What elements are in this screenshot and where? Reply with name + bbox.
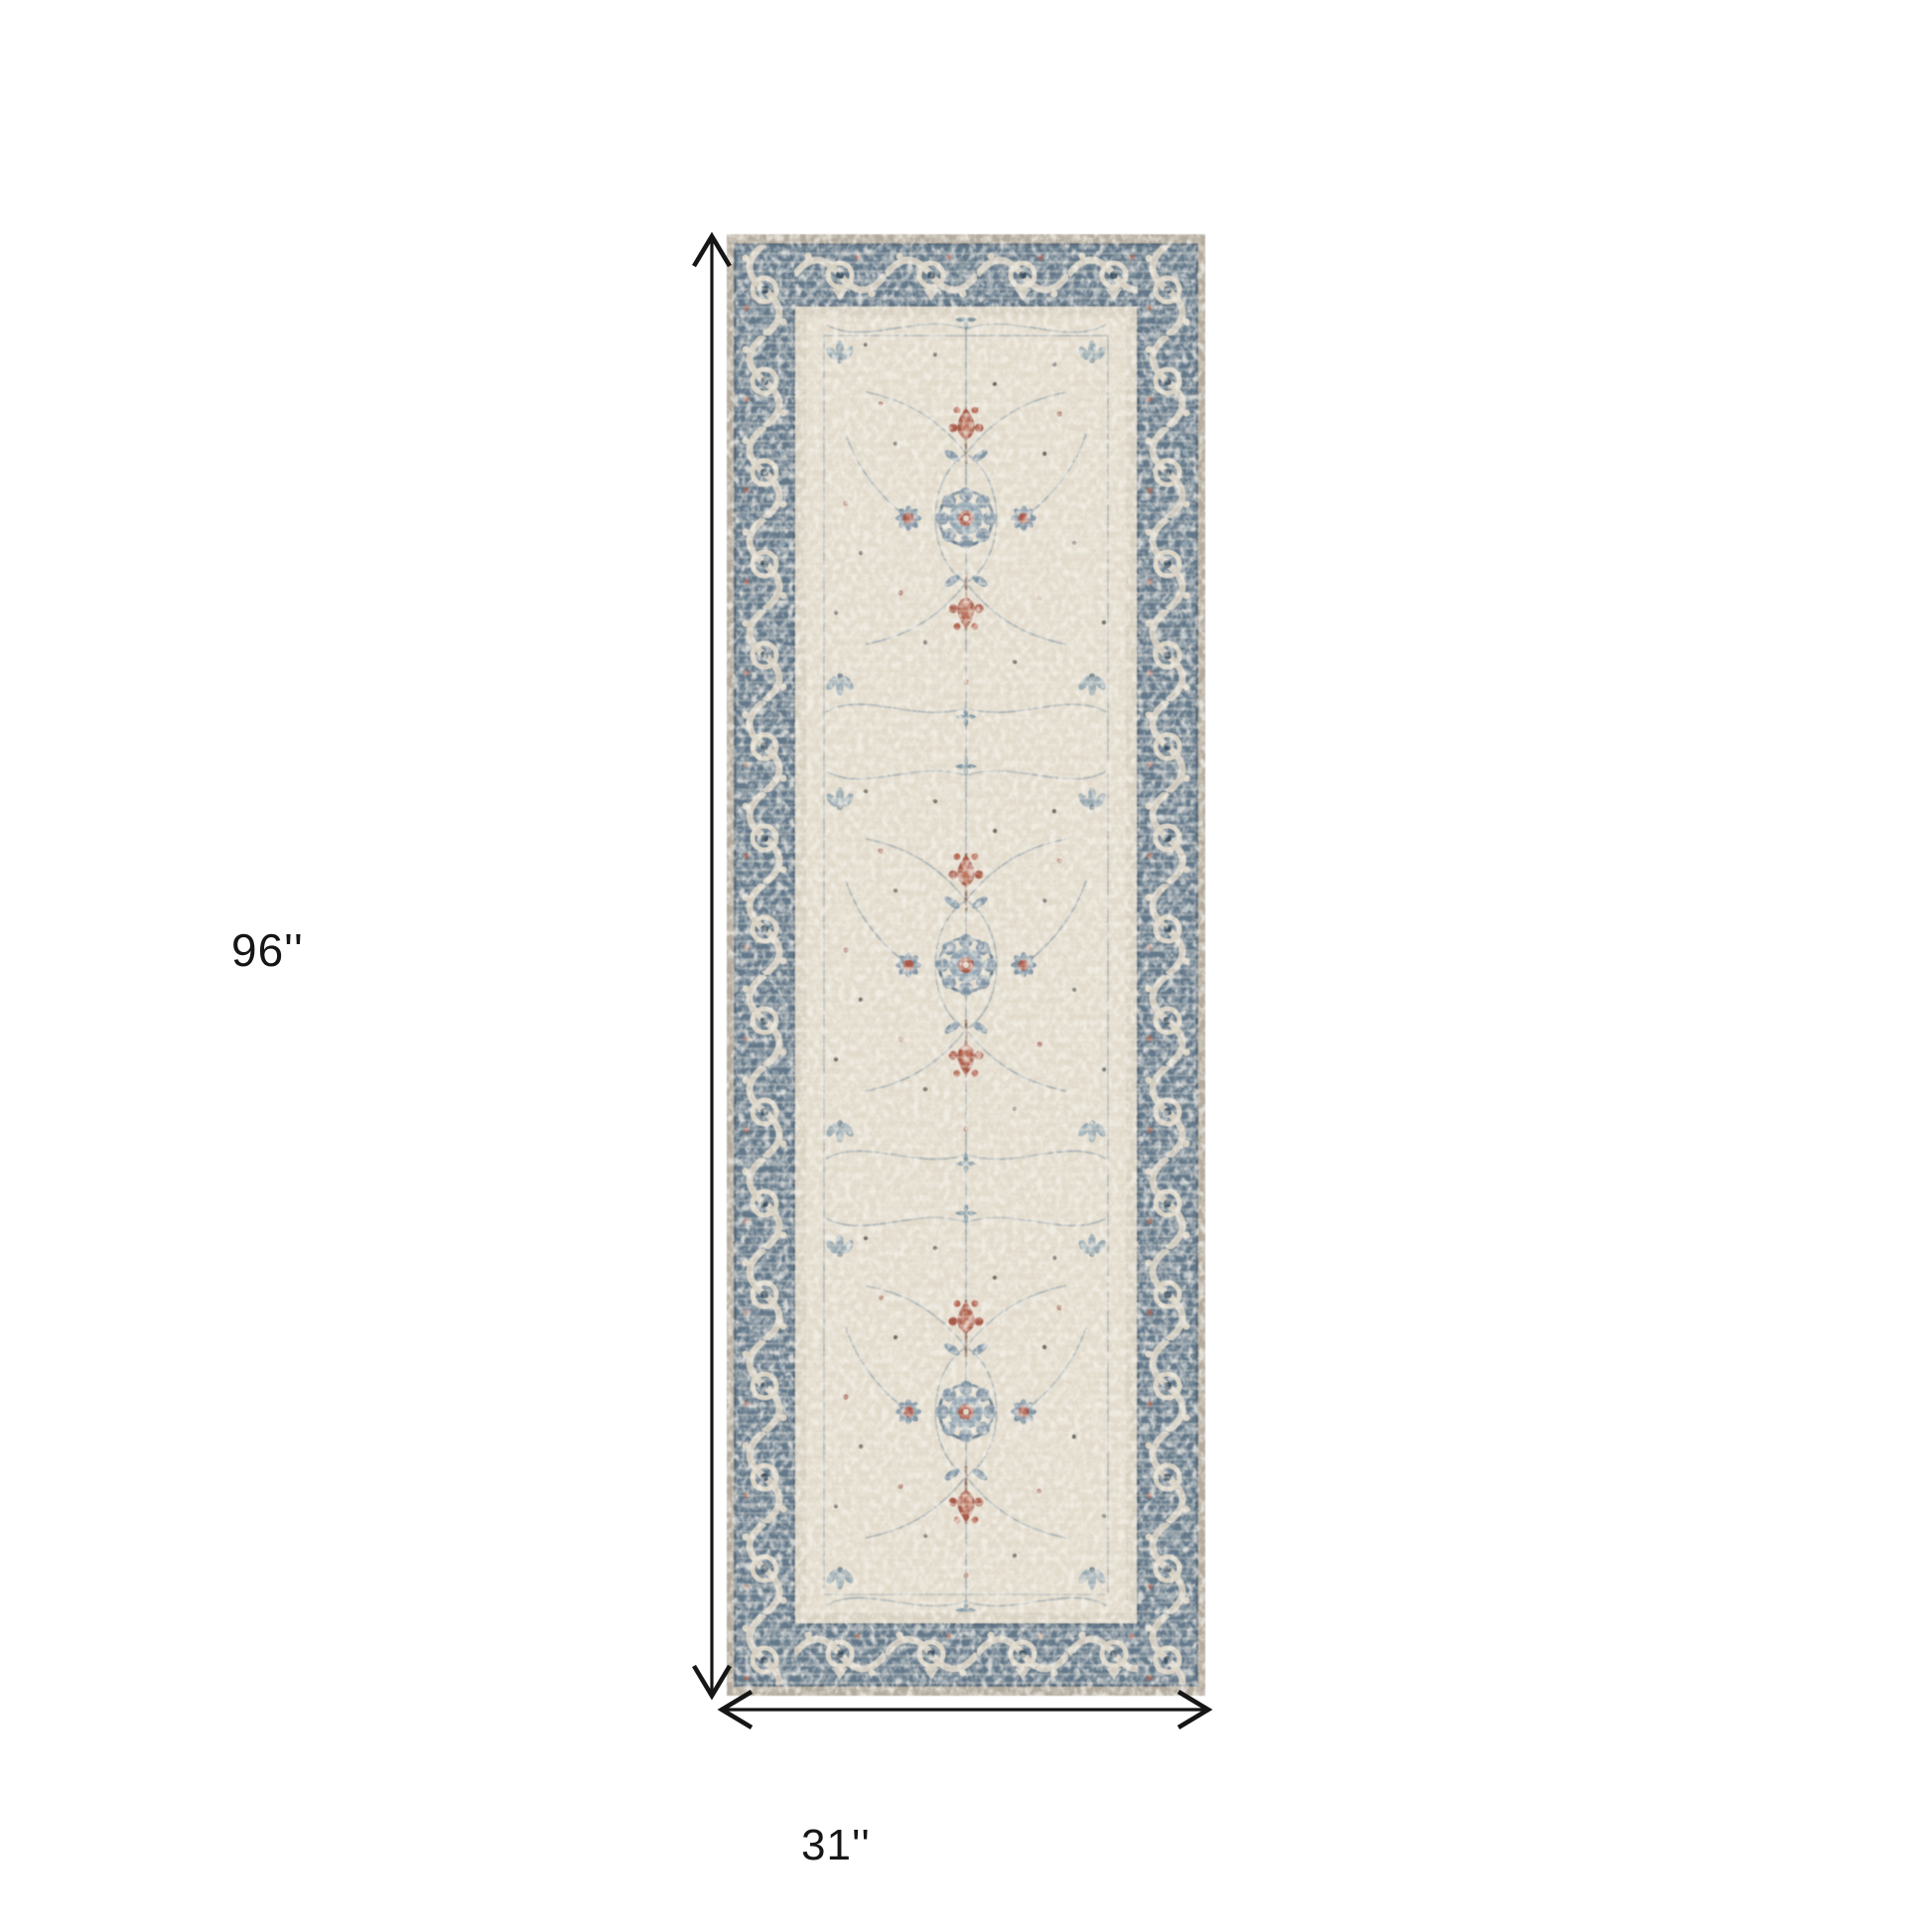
width-dimension-label: 31''	[801, 1824, 871, 1867]
product-dimension-diagram: 96'' 31''	[0, 0, 1932, 1932]
height-dimension-label: 96''	[231, 927, 304, 973]
width-dimension-arrow	[698, 1687, 1214, 1732]
rug-artwork	[727, 234, 1205, 1696]
height-dimension-arrow	[689, 230, 735, 1702]
rug-distress-dark-overlay	[727, 234, 1205, 1696]
rug-image	[727, 234, 1205, 1696]
